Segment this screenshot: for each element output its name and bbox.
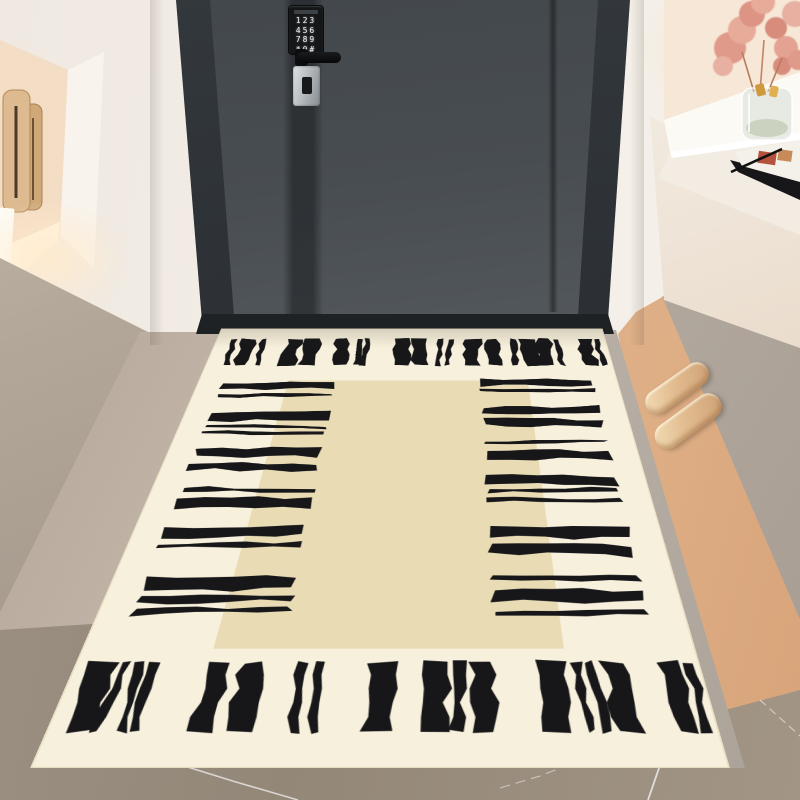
door-shadow-on-mat <box>213 329 609 348</box>
glass-vase <box>742 88 792 140</box>
entry-counter-area <box>630 0 800 235</box>
keypad-row-2: 456 <box>289 26 323 36</box>
wooden-hangers <box>3 90 42 212</box>
keypad-row-1: 123 <box>289 16 323 26</box>
keyhole-icon <box>302 77 312 94</box>
entryway-scene: 123 456 789 *0# <box>0 0 800 800</box>
wall-corner-shadow-left <box>150 0 164 345</box>
keypad-lock: 123 456 789 *0# <box>289 6 323 54</box>
door-groove <box>548 0 558 312</box>
keypad-display <box>294 10 318 14</box>
keypad-row-3: 789 <box>289 35 323 45</box>
door-handle <box>297 52 341 63</box>
